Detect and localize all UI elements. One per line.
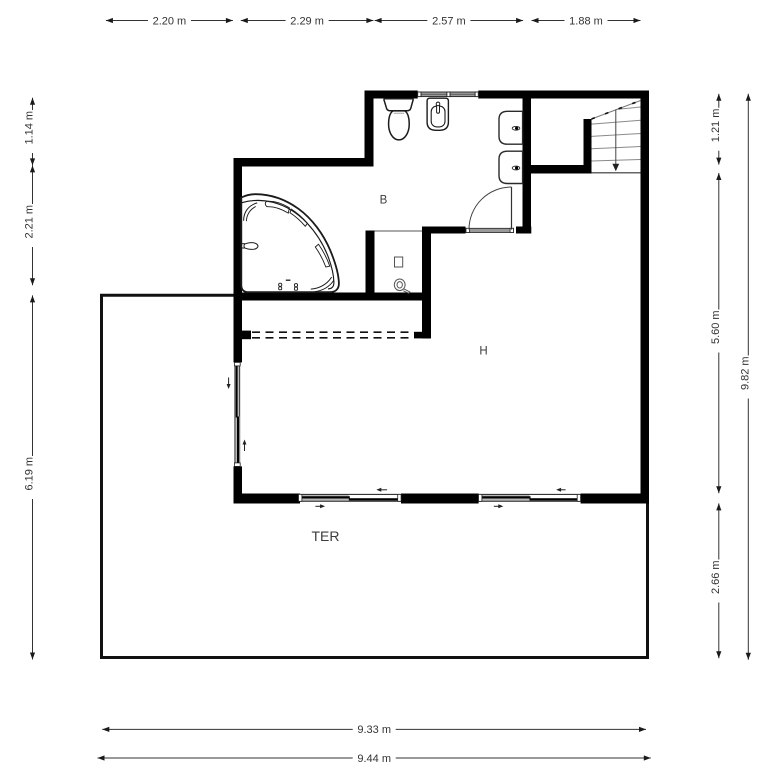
svg-text:6.19 m: 6.19 m [24,457,36,491]
svg-text:9.33 m: 9.33 m [357,724,391,736]
svg-text:B: B [380,195,388,207]
svg-text:H: H [479,345,487,357]
svg-text:1.21 m: 1.21 m [710,109,722,143]
svg-text:2.29 m: 2.29 m [290,15,324,27]
svg-text:TER: TER [312,528,340,544]
svg-text:2.66 m: 2.66 m [710,560,722,594]
svg-text:9.44 m: 9.44 m [357,753,391,765]
svg-text:1.14 m: 1.14 m [24,111,36,145]
svg-text:9.82 m: 9.82 m [739,356,751,390]
svg-text:2.57 m: 2.57 m [432,15,466,27]
svg-text:2.21 m: 2.21 m [24,205,36,239]
svg-text:1.88 m: 1.88 m [569,15,603,27]
svg-text:2.20 m: 2.20 m [153,15,187,27]
svg-text:5.60 m: 5.60 m [710,310,722,344]
